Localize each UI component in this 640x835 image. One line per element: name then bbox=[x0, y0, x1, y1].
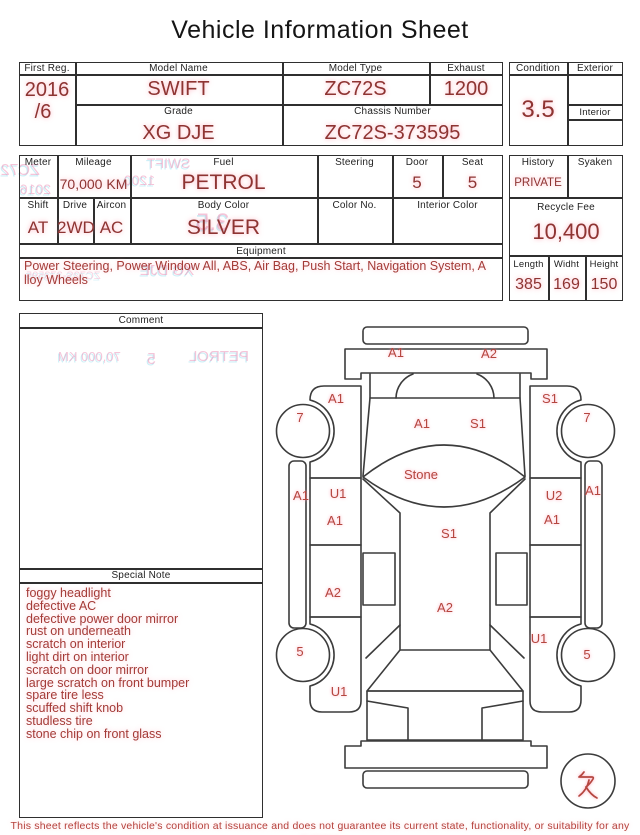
spare-tire-missing-kanji bbox=[579, 772, 597, 798]
history-line bbox=[509, 255, 623, 257]
recycle-fee-header: Recycle Fee bbox=[509, 202, 623, 213]
condition-line bbox=[567, 119, 623, 121]
meter-header: Meter bbox=[19, 157, 57, 168]
height-header: Height bbox=[585, 259, 623, 270]
mark-hood-left: A1 bbox=[414, 416, 430, 431]
mark-front-door-right-top: U2 bbox=[546, 488, 563, 503]
special-note-item: light dirt on interior bbox=[26, 651, 258, 664]
mark-front-bumper-right: A2 bbox=[481, 346, 497, 361]
aircon-value: AC bbox=[93, 218, 130, 238]
mark-front-door-left-top: U1 bbox=[330, 486, 347, 501]
shift-header: Shift bbox=[19, 200, 57, 211]
mark-rear-body: A2 bbox=[437, 600, 453, 615]
door-header: Door bbox=[392, 157, 442, 168]
drive-header: Drive bbox=[57, 200, 93, 211]
equipment-value: Power Steering, Power Window All, ABS, A… bbox=[24, 260, 488, 287]
history-value: PRIVATE bbox=[509, 177, 567, 189]
model-name-header: Model Name bbox=[75, 63, 282, 74]
front-bumper bbox=[345, 349, 547, 379]
mark-rear-wheel-right: 5 bbox=[583, 647, 590, 662]
body-color-value: SILVER bbox=[130, 216, 317, 240]
mileage-value: 70,000 KM bbox=[57, 176, 130, 192]
quarter-window-right bbox=[496, 553, 527, 605]
car-condition-diagram: A1 A2 A1 S1 7 7 A1 S1 Stone A1 U1 A1 U2 … bbox=[265, 315, 640, 820]
mark-roof: S1 bbox=[441, 526, 457, 541]
comment-frame bbox=[19, 313, 263, 818]
interior-header: Interior bbox=[567, 107, 623, 118]
headlight-left bbox=[396, 374, 413, 398]
model-type-value: ZC72S bbox=[282, 78, 429, 101]
mark-rear-quarter-right: U1 bbox=[531, 631, 548, 646]
chassis-number-header: Chassis Number bbox=[282, 106, 503, 117]
exhaust-value: 1200 bbox=[429, 78, 503, 101]
vehicle-information-sheet: ZC72S 2016 SWIFT 1200 3.5 XG DJE ZC72S-3… bbox=[0, 0, 640, 835]
mark-sill-left: A1 bbox=[293, 488, 309, 503]
steering-header: Steering bbox=[317, 157, 392, 168]
exhaust-header: Exhaust bbox=[429, 63, 503, 74]
first-reg-year-value: 2016 bbox=[19, 79, 75, 102]
front-upper-strip bbox=[363, 327, 528, 344]
mark-front-wheel-right: 7 bbox=[583, 410, 590, 425]
mark-rear-fender-left: U1 bbox=[331, 684, 348, 699]
chassis-number-value: ZC72S-373595 bbox=[282, 122, 503, 145]
special-note-header: Special Note bbox=[19, 570, 263, 581]
mark-rear-door-left: A2 bbox=[325, 585, 341, 600]
table2-line bbox=[19, 197, 503, 199]
fuel-value: PETROL bbox=[130, 171, 317, 195]
mark-front-bumper-left: A1 bbox=[388, 345, 404, 360]
comment-line bbox=[19, 327, 263, 329]
interior-color-header: Interior Color bbox=[392, 200, 503, 211]
first-reg-header: First Reg. bbox=[19, 63, 75, 74]
seat-value: 5 bbox=[442, 173, 503, 193]
mark-rear-wheel-left: 5 bbox=[296, 644, 303, 659]
rear-lower-strip bbox=[363, 771, 528, 788]
page-title: Vehicle Information Sheet bbox=[0, 16, 640, 45]
equipment-header: Equipment bbox=[19, 246, 503, 257]
windshield-outline bbox=[363, 445, 525, 507]
fuel-header: Fuel bbox=[130, 157, 317, 168]
condition-value: 3.5 bbox=[509, 96, 567, 124]
history-line bbox=[509, 197, 623, 199]
syaken-header: Syaken bbox=[567, 157, 623, 168]
drive-value: 2WD bbox=[57, 218, 93, 238]
model-name-value: SWIFT bbox=[75, 78, 282, 101]
mark-front-door-right: A1 bbox=[544, 512, 560, 527]
special-note-item: foggy headlight bbox=[26, 587, 258, 600]
special-note-list: foggy headlight defective AC defective p… bbox=[26, 587, 258, 741]
mileage-header: Mileage bbox=[57, 157, 130, 168]
height-value: 150 bbox=[585, 276, 623, 294]
shift-value: AT bbox=[19, 218, 57, 238]
mark-front-fender-right: S1 bbox=[542, 391, 558, 406]
taillight-right bbox=[482, 701, 523, 740]
front-panel bbox=[370, 374, 520, 398]
first-reg-month-value: /6 bbox=[15, 101, 71, 124]
c-pillar-left bbox=[366, 625, 400, 658]
door-value: 5 bbox=[392, 173, 442, 193]
grade-header: Grade bbox=[75, 106, 282, 117]
rear-door-left bbox=[310, 545, 361, 617]
taillight-left bbox=[367, 701, 408, 740]
mark-sill-right: A1 bbox=[585, 483, 601, 498]
special-note-item: stone chip on front glass bbox=[26, 728, 258, 741]
history-header: History bbox=[509, 157, 567, 168]
quarter-window-left bbox=[363, 553, 395, 605]
color-no-header: Color No. bbox=[317, 200, 392, 211]
mark-front-door-left: A1 bbox=[327, 513, 343, 528]
hood-edge-right bbox=[520, 398, 525, 476]
rear-glass bbox=[367, 650, 523, 691]
hood-edge-left bbox=[363, 398, 370, 476]
mark-front-wheel-left: 7 bbox=[296, 410, 303, 425]
mark-hood-right: S1 bbox=[470, 416, 486, 431]
headlight-right bbox=[477, 374, 494, 398]
special-note-item: defective AC bbox=[26, 600, 258, 613]
grade-value: XG DJE bbox=[75, 122, 282, 145]
body-color-header: Body Color bbox=[130, 200, 317, 211]
length-header: Length bbox=[509, 259, 548, 270]
rear-bumper bbox=[345, 741, 547, 768]
condition-line bbox=[509, 74, 623, 76]
condition-line bbox=[567, 104, 623, 106]
c-pillar-right bbox=[490, 625, 524, 658]
table1-line bbox=[19, 74, 503, 76]
width-header: Widht bbox=[548, 259, 585, 270]
comment-header: Comment bbox=[19, 315, 263, 326]
model-type-header: Model Type bbox=[282, 63, 429, 74]
condition-header: Condition bbox=[509, 63, 567, 74]
width-value: 169 bbox=[548, 276, 585, 294]
special-note-item: studless tire bbox=[26, 715, 258, 728]
tailgate bbox=[367, 691, 523, 740]
recycle-fee-value: 10,400 bbox=[509, 219, 623, 245]
table2-line bbox=[19, 243, 503, 245]
special-note-item: scratch on door mirror bbox=[26, 664, 258, 677]
exterior-header: Exterior bbox=[567, 63, 623, 74]
special-note-line bbox=[19, 582, 263, 584]
length-value: 385 bbox=[509, 276, 548, 294]
seat-header: Seat bbox=[442, 157, 503, 168]
sill-left bbox=[289, 461, 306, 628]
mark-front-fender-left: A1 bbox=[328, 391, 344, 406]
disclaimer-text: This sheet reflects the vehicle's condit… bbox=[0, 820, 640, 835]
rear-door-right bbox=[530, 545, 581, 617]
mark-windshield-stone: Stone bbox=[404, 467, 438, 482]
aircon-header: Aircon bbox=[93, 200, 130, 211]
